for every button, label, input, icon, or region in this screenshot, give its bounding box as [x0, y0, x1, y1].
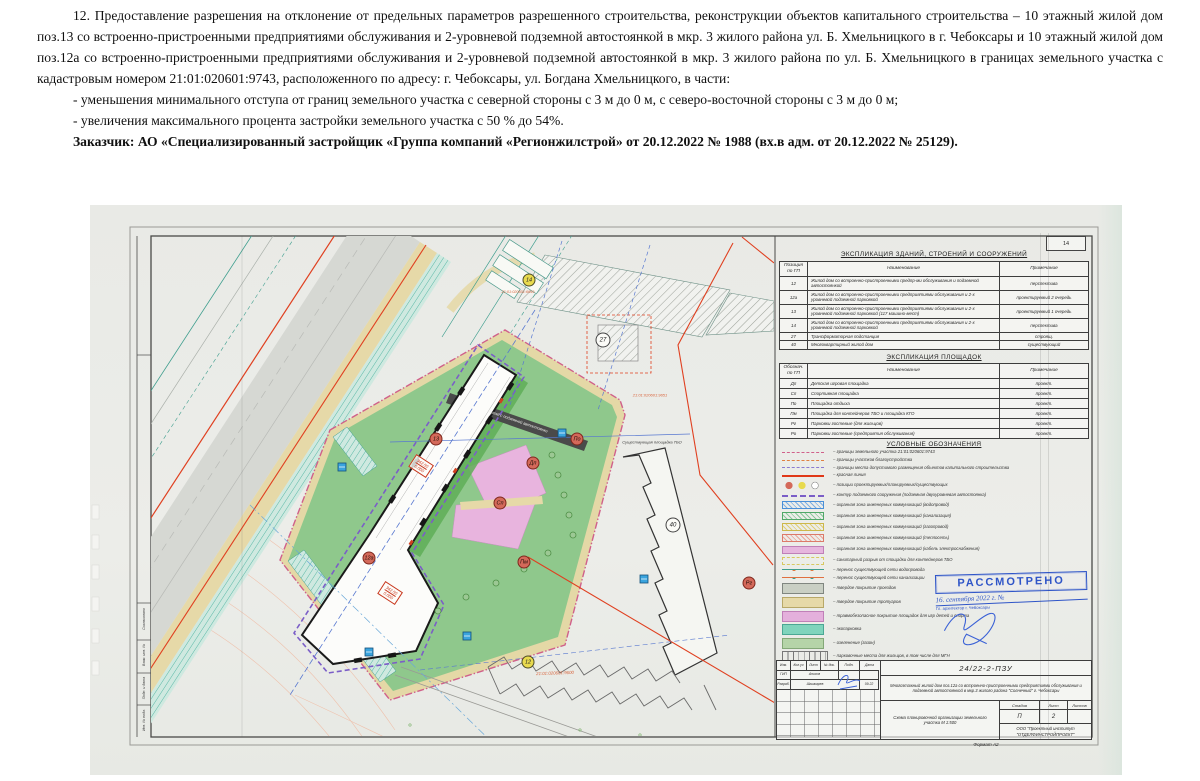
legend-item-label: – охранная зона инженерных коммуникаций …	[833, 536, 949, 541]
cell-position: Дп	[780, 378, 808, 388]
legend-swatch-icon	[782, 475, 824, 477]
legend-swatch-icon	[782, 501, 824, 509]
buildings-table: Позиция по ГП Наименование Примечание 12…	[779, 261, 1089, 350]
table-row: Ро Парковки гостевые (предприятия обслуж…	[780, 428, 1088, 438]
areas-table-body: Дп Детская игровая площадка проект. Сп С…	[780, 378, 1088, 438]
legend-item: – охранная зона инженерных коммуникаций …	[782, 512, 1088, 520]
areas-table-title: ЭКСПЛИКАЦИЯ ПЛОЩАДОК	[776, 354, 1092, 361]
cell-name: Жилой дом со встроенно-пристроенными пре…	[808, 276, 1000, 290]
cell-position: Рг	[780, 418, 808, 428]
legend-swatch-icon	[782, 577, 824, 579]
sheet-number-box: 14	[1046, 236, 1086, 251]
title-block-left-grid: Изм. Кол.уч Лист № док. Подп. Дата ГИП А…	[777, 661, 881, 739]
project-description: Многоэтажный жилой дом поз.12а со встрое…	[881, 676, 1091, 701]
tb-signer-role: Разраб.	[777, 680, 791, 690]
drawing-info-panel: 14 ЭКСПЛИКАЦИЯ ЗДАНИЙ, СТРОЕНИЙ И СООРУЖ…	[776, 235, 1092, 737]
legend-swatch-icon	[782, 583, 824, 594]
legend-item-label: – перенос существующей сети канализации	[833, 576, 924, 581]
legend-item-label: – красная линия	[833, 473, 866, 478]
buildings-table-title: ЭКСПЛИКАЦИЯ ЗДАНИЙ, СТРОЕНИЙ И СООРУЖЕНИ…	[776, 251, 1092, 258]
fold-crease	[1048, 233, 1049, 739]
table-row: 14 Жилой дом со встроенно-пристроенными …	[780, 318, 1088, 332]
scheme-label: Схема планировочной организации земельно…	[881, 701, 1000, 739]
areas-table: Обознач. по ГП Наименование Примечание Д…	[779, 363, 1089, 439]
legend-swatch-icon	[782, 597, 824, 608]
cell-note: проект.	[1000, 388, 1088, 398]
stage-value: П	[1000, 710, 1040, 723]
cell-position: 12	[780, 276, 808, 290]
shrub-dots	[409, 724, 641, 761]
tb-col-header: Лист	[807, 661, 821, 671]
table-row: 12а Жилой дом со встроенно-пристроенными…	[780, 290, 1088, 304]
legend-swatch-icon	[782, 460, 824, 461]
table-row: Дп Детская игровая площадка проект.	[780, 378, 1088, 388]
stage-col-header: Листов	[1068, 701, 1091, 709]
scan-edge-marks	[92, 505, 99, 675]
legend-swatch-icon	[782, 481, 824, 490]
cell-note: строящ.	[1000, 332, 1088, 341]
legend-item: – охранная зона инженерных коммуникаций …	[782, 534, 1088, 542]
title-block: Изм. Кол.уч Лист № док. Подп. Дата ГИП А…	[776, 660, 1092, 740]
legend-swatch-icon	[782, 467, 824, 468]
table-row: Рг Парковки гостевые (для жильцов) проек…	[780, 418, 1088, 428]
format-label: Формат А2	[880, 742, 1092, 747]
legend-item: – красная линия	[782, 473, 1088, 478]
legend-item-label: – охранная зона инженерных коммуникаций …	[833, 525, 948, 530]
cell-note: проектируемый 1 очередь	[1000, 304, 1088, 318]
legend-swatch-icon	[782, 512, 824, 520]
cell-position: 40	[780, 340, 808, 349]
sheet-value: 2	[1040, 710, 1068, 723]
legend-title: УСЛОВНЫЕ ОБОЗНАЧЕНИЯ	[776, 441, 1092, 448]
table-row: 13 Жилой дом со встроенно-пристроенными …	[780, 304, 1088, 318]
legend-item-label: – озеленение (газон)	[833, 641, 875, 646]
cell-note: проект.	[1000, 378, 1088, 388]
cell-note: перспектива	[1000, 318, 1088, 332]
table-row: 40 Многоквартирный жилой дом существующи…	[780, 340, 1088, 349]
legend-item: – границы участков благоустройства	[782, 458, 1088, 463]
buildings-table-body: 12 Жилой дом со встроенно-пристроенными …	[780, 276, 1088, 349]
tb-signer-role: ГИП	[777, 671, 791, 681]
cell-position: 13	[780, 304, 808, 318]
cell-position: 14	[780, 318, 808, 332]
site-plan-scan: 1312аДпСпПоПмРг1412274021:01:020601:9600…	[90, 205, 1122, 775]
legend-item: – охранная зона инженерных коммуникаций …	[782, 501, 1088, 509]
cell-name: Спортивная площадка	[808, 388, 1000, 398]
legend-swatch-icon	[782, 452, 824, 453]
legend-swatch-icon	[782, 569, 824, 571]
cell-name: Парковки гостевые (для жильцов)	[808, 418, 1000, 428]
legend-item: – санитарный разрыв от площадки для конт…	[782, 557, 1088, 565]
legend-item: – контур подземного сооружения (подземна…	[782, 493, 1088, 498]
legend-swatch-icon	[782, 534, 824, 542]
cell-name: Парковки гостевые (предприятия обслужива…	[808, 428, 1000, 438]
legend-item: – границы места допустимого размещения о…	[782, 466, 1088, 471]
reviewed-stamp: РАССМОТРЕНО 16. сентября 2022 г. № Гл. а…	[935, 571, 1089, 659]
legend-item-label: – границы участков благоустройства	[833, 458, 912, 463]
areas-table-header: Обознач. по ГП Наименование Примечание	[780, 364, 1088, 378]
tb-col-header: Кол.уч	[791, 661, 807, 671]
cell-position: По	[780, 398, 808, 408]
legend-swatch-icon	[782, 557, 824, 565]
col-header: Примечание	[1000, 262, 1088, 276]
document-page: { "doc": { "p12": "12. Предоставление ра…	[0, 0, 1200, 781]
stage-header-row: Стадия Лист Листов	[1000, 701, 1091, 710]
tb-empty-rows	[777, 690, 880, 737]
paragraph-item-2: - увеличения максимального процента заст…	[37, 110, 1163, 131]
legend-item-label: – охранная зона инженерных коммуникаций …	[833, 514, 951, 519]
col-header: Позиция по ГП	[780, 262, 808, 276]
cell-name: Площадка отдыха	[808, 398, 1000, 408]
cell-position: 12а	[780, 290, 808, 304]
legend-item: – позиции проектируемых/планируемых/суще…	[782, 481, 1088, 490]
cell-note: проект.	[1000, 398, 1088, 408]
legend-item: – охранная зона инженерных коммуникаций …	[782, 523, 1088, 531]
cell-note: проект.	[1000, 408, 1088, 418]
cell-note: перспектива	[1000, 276, 1088, 290]
tb-col-header: Изм.	[777, 661, 791, 671]
legend-item-label: – границы места допустимого размещения о…	[833, 466, 1009, 471]
plan-area	[90, 205, 775, 775]
tb-signer-name: Анисов	[791, 671, 839, 681]
legend-item-label: – санитарный разрыв от площадки для конт…	[833, 558, 952, 563]
col-header: Наименование	[808, 262, 1000, 276]
legend-item-label: – охранная зона инженерных коммуникаций …	[833, 503, 949, 508]
legend-item-label: – экопарковка	[833, 627, 861, 632]
cell-position: Ро	[780, 428, 808, 438]
buildings-table-header: Позиция по ГП Наименование Примечание	[780, 262, 1088, 276]
cell-name: Трансформаторная подстанция	[808, 332, 1000, 341]
table-row: По Площадка отдыха проект.	[780, 398, 1088, 408]
scan-edge-tint	[1098, 205, 1122, 775]
document-code: 24/22-2-ПЗУ	[881, 661, 1091, 676]
document-text-block: 12. Предоставление разрешения на отклоне…	[37, 5, 1163, 152]
cell-position: Пм	[780, 408, 808, 418]
table-row: 12 Жилой дом со встроенно-пристроенными …	[780, 276, 1088, 290]
legend-item-label: – перенос существующей сети водопровода	[833, 568, 925, 573]
sheets-value	[1068, 710, 1091, 723]
paragraph-customer: Заказчик: АО «Специализированный застрой…	[37, 131, 1163, 152]
signature-icon	[835, 669, 863, 691]
cell-name: Жилой дом со встроенно-пристроенными пре…	[808, 290, 1000, 304]
cell-name: Жилой дом со встроенно-пристроенными пре…	[808, 304, 1000, 318]
legend-swatch-icon	[782, 546, 824, 554]
cell-note: проект.	[1000, 418, 1088, 428]
legend-item-label: – парковочные места для жильцов, в том ч…	[833, 654, 950, 659]
legend-item-label: – твердое покрытие проездов	[833, 586, 896, 591]
col-header: Примечание	[1000, 364, 1088, 378]
col-header: Наименование	[808, 364, 1000, 378]
table-row: 27 Трансформаторная подстанция строящ.	[780, 332, 1088, 341]
table-row: Пм Площадка для контейнеров ТБО и площад…	[780, 408, 1088, 418]
paragraph-12: 12. Предоставление разрешения на отклоне…	[37, 5, 1163, 89]
title-block-right: 24/22-2-ПЗУ Многоэтажный жилой дом поз.1…	[881, 661, 1091, 739]
cell-position: Сп	[780, 388, 808, 398]
legend-swatch-icon	[782, 638, 824, 649]
cell-note: проект.	[1000, 428, 1088, 438]
stage-col-header: Стадия	[1000, 701, 1040, 709]
cell-name: Многоквартирный жилой дом	[808, 340, 1000, 349]
cell-position: 27	[780, 332, 808, 341]
legend-item-label: – охранная зона инженерных коммуникаций …	[833, 547, 980, 552]
legend-item-label: – позиции проектируемых/планируемых/суще…	[833, 483, 948, 488]
legend-swatch-icon	[782, 624, 824, 635]
legend-swatch-icon	[782, 495, 824, 497]
cell-name: Детская игровая площадка	[808, 378, 1000, 388]
legend-item-label: – контур подземного сооружения (подземна…	[833, 493, 986, 498]
signature-icon	[936, 599, 1007, 653]
legend-item-label: – границы земельного участка 21:01:02060…	[833, 450, 935, 455]
stage-value-row: П 2	[1000, 710, 1091, 724]
legend-item: – границы земельного участка 21:01:02060…	[782, 450, 1088, 455]
cell-note: существующий	[1000, 340, 1088, 349]
paragraph-item-1: - уменьшения минимального отступа от гра…	[37, 89, 1163, 110]
col-header: Обознач. по ГП	[780, 364, 808, 378]
fold-crease	[1040, 233, 1041, 739]
legend-swatch-icon	[782, 523, 824, 531]
organization-name: ООО "Проектный институт "ОТДЕЛФИНСТРОЙПР…	[1000, 724, 1091, 739]
tb-signer-name: Шашкарев	[791, 680, 839, 690]
cell-name: Площадка для контейнеров ТБО и площадка …	[808, 408, 1000, 418]
table-row: Сп Спортивная площадка проект.	[780, 388, 1088, 398]
cell-note: проектируемый 2 очередь	[1000, 290, 1088, 304]
legend-item-label: – твердое покрытие тротуаров	[833, 600, 901, 605]
cell-name: Жилой дом со встроенно-пристроенными пре…	[808, 318, 1000, 332]
legend-swatch-icon	[782, 611, 824, 622]
stage-col-header: Лист	[1040, 701, 1068, 709]
legend-item: – охранная зона инженерных коммуникаций …	[782, 546, 1088, 554]
